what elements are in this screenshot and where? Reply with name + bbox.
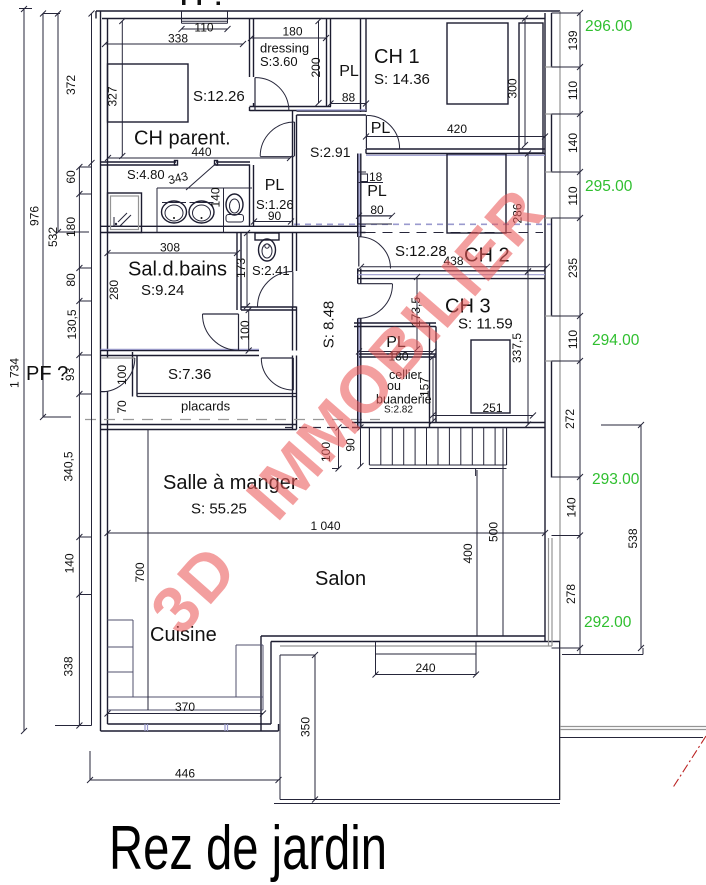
- svg-text:80: 80: [64, 273, 78, 287]
- svg-text:700: 700: [133, 562, 147, 582]
- svg-text:235: 235: [566, 258, 580, 278]
- svg-text:500: 500: [487, 522, 501, 542]
- svg-text:1 734: 1 734: [8, 358, 22, 388]
- svg-text:PL: PL: [367, 183, 387, 200]
- svg-text:110: 110: [566, 81, 580, 100]
- svg-text:538: 538: [626, 528, 640, 548]
- svg-text:140: 140: [565, 497, 579, 517]
- svg-text:110: 110: [194, 21, 213, 35]
- svg-text:327: 327: [106, 86, 120, 106]
- svg-text:88: 88: [342, 91, 356, 105]
- svg-text:446: 446: [175, 767, 195, 781]
- svg-text:340,5: 340,5: [61, 451, 75, 481]
- svg-text:294.00: 294.00: [592, 332, 640, 349]
- svg-text:280: 280: [107, 280, 121, 300]
- svg-text:308: 308: [160, 241, 180, 255]
- svg-text:350: 350: [299, 717, 313, 737]
- svg-text:Rez de jardin: Rez de jardin: [109, 814, 387, 883]
- svg-text:Salon: Salon: [315, 568, 366, 590]
- svg-text:180: 180: [282, 25, 302, 39]
- svg-text:CH parent.: CH parent.: [134, 128, 231, 150]
- svg-text:337,5: 337,5: [510, 333, 524, 363]
- svg-text:PL: PL: [339, 63, 359, 80]
- svg-text:S:2.41: S:2.41: [252, 263, 290, 278]
- svg-text:180: 180: [64, 217, 78, 237]
- svg-text:100: 100: [238, 320, 252, 340]
- svg-text:293.00: 293.00: [592, 471, 640, 488]
- svg-text:S:9.24: S:9.24: [141, 282, 184, 299]
- svg-text:S:2.91: S:2.91: [310, 144, 351, 160]
- svg-text:370: 370: [175, 700, 195, 714]
- svg-text:1 040: 1 040: [310, 519, 340, 533]
- svg-text:296.00: 296.00: [585, 18, 633, 35]
- svg-text:110: 110: [566, 330, 580, 349]
- svg-text:CH 1: CH 1: [374, 46, 420, 68]
- svg-text:139: 139: [566, 30, 580, 50]
- svg-text:18: 18: [369, 170, 383, 184]
- svg-text:S: 55.25: S: 55.25: [191, 501, 247, 518]
- svg-text:400: 400: [461, 543, 475, 563]
- svg-text:PF ?: PF ?: [26, 363, 68, 385]
- svg-text:292.00: 292.00: [584, 614, 632, 631]
- svg-text:S:1.26: S:1.26: [256, 197, 294, 212]
- svg-text:70: 70: [115, 400, 129, 414]
- svg-text:532: 532: [46, 227, 60, 247]
- svg-text:PL: PL: [371, 120, 391, 137]
- svg-text:S: 14.36: S: 14.36: [374, 71, 430, 88]
- svg-text:372: 372: [64, 75, 78, 95]
- svg-text:S:3.60: S:3.60: [260, 54, 298, 69]
- svg-text:173: 173: [234, 258, 248, 278]
- svg-text:300: 300: [506, 78, 520, 98]
- svg-text:Sal.d.bains: Sal.d.bains: [128, 259, 227, 281]
- svg-text:110: 110: [566, 186, 580, 205]
- svg-text:S:7.36: S:7.36: [168, 366, 211, 383]
- svg-text:placards: placards: [181, 399, 231, 414]
- svg-text:976: 976: [28, 206, 42, 226]
- svg-text:251: 251: [482, 401, 502, 415]
- svg-text:PL: PL: [265, 177, 285, 194]
- svg-text:130,5: 130,5: [65, 309, 79, 339]
- svg-text:200: 200: [309, 57, 323, 77]
- svg-text:272: 272: [563, 409, 577, 429]
- svg-text:420: 420: [447, 122, 467, 136]
- svg-text:140: 140: [566, 133, 580, 153]
- svg-text:338: 338: [62, 656, 76, 676]
- svg-text:S:12.26: S:12.26: [193, 88, 245, 105]
- svg-text:295.00: 295.00: [585, 178, 633, 195]
- svg-text:338: 338: [168, 32, 188, 46]
- svg-text:240: 240: [415, 661, 435, 675]
- svg-text:100: 100: [115, 365, 129, 385]
- svg-text:140: 140: [62, 553, 76, 573]
- svg-text:S: 8.48: S: 8.48: [321, 301, 338, 349]
- svg-text:278: 278: [564, 584, 578, 604]
- svg-text:S:4.80: S:4.80: [127, 167, 165, 182]
- svg-text:80: 80: [370, 203, 384, 217]
- svg-text:140: 140: [209, 187, 223, 207]
- svg-text:60: 60: [64, 170, 78, 184]
